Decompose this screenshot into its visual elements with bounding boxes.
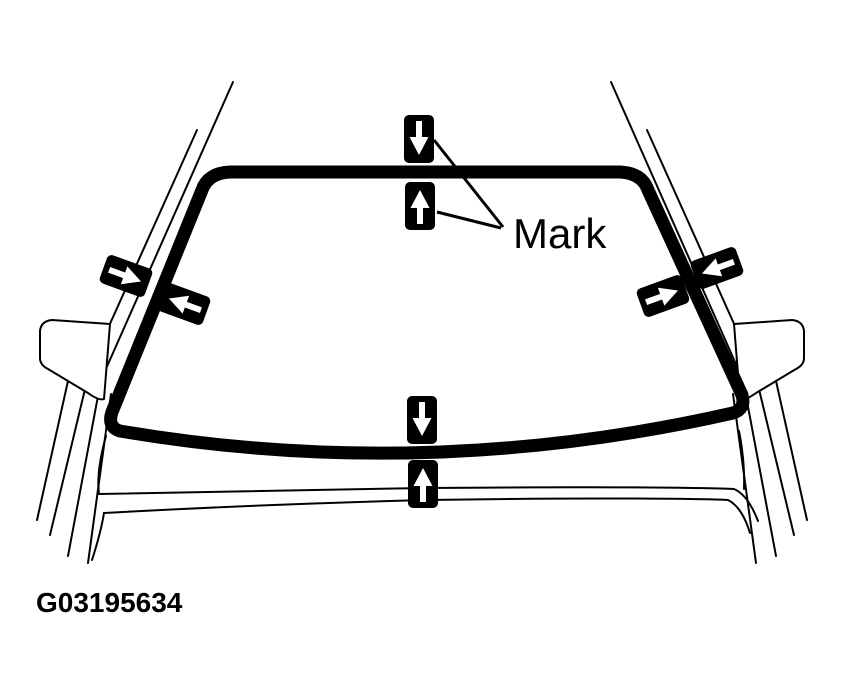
alignment-mark-top-outer xyxy=(404,115,434,163)
arrow-up-icon xyxy=(405,182,435,230)
arrow-right-icon xyxy=(98,254,153,299)
alignment-mark-right-outer xyxy=(689,246,744,291)
arrow-left-icon xyxy=(156,282,211,327)
mark-label: Mark xyxy=(513,210,607,257)
arrow-down-icon xyxy=(407,396,437,444)
arrow-down-icon xyxy=(404,115,434,163)
alignment-mark-bottom-inner xyxy=(408,460,438,508)
a-pillar-line-left-lower-2 xyxy=(50,385,86,535)
arrow-right-icon xyxy=(635,274,690,319)
alignment-mark-bottom-outer xyxy=(407,396,437,444)
arrow-up-icon xyxy=(408,460,438,508)
alignment-mark-left-inner xyxy=(156,282,211,327)
a-pillar-line-right-outer xyxy=(611,82,776,556)
windshield-alignment-diagram: Mark G03195634 xyxy=(0,0,844,685)
a-pillar-line-right-lower-1 xyxy=(774,372,807,520)
arrow-left-icon xyxy=(689,246,744,291)
figure-id: G03195634 xyxy=(36,587,183,618)
alignment-mark-right-inner xyxy=(635,274,690,319)
alignment-mark-left-outer xyxy=(98,254,153,299)
side-mirror-left xyxy=(40,320,110,399)
a-pillar-line-left-lower-1 xyxy=(37,372,70,520)
alignment-mark-top-inner xyxy=(405,182,435,230)
a-pillar-line-right-lower-2 xyxy=(758,385,794,535)
